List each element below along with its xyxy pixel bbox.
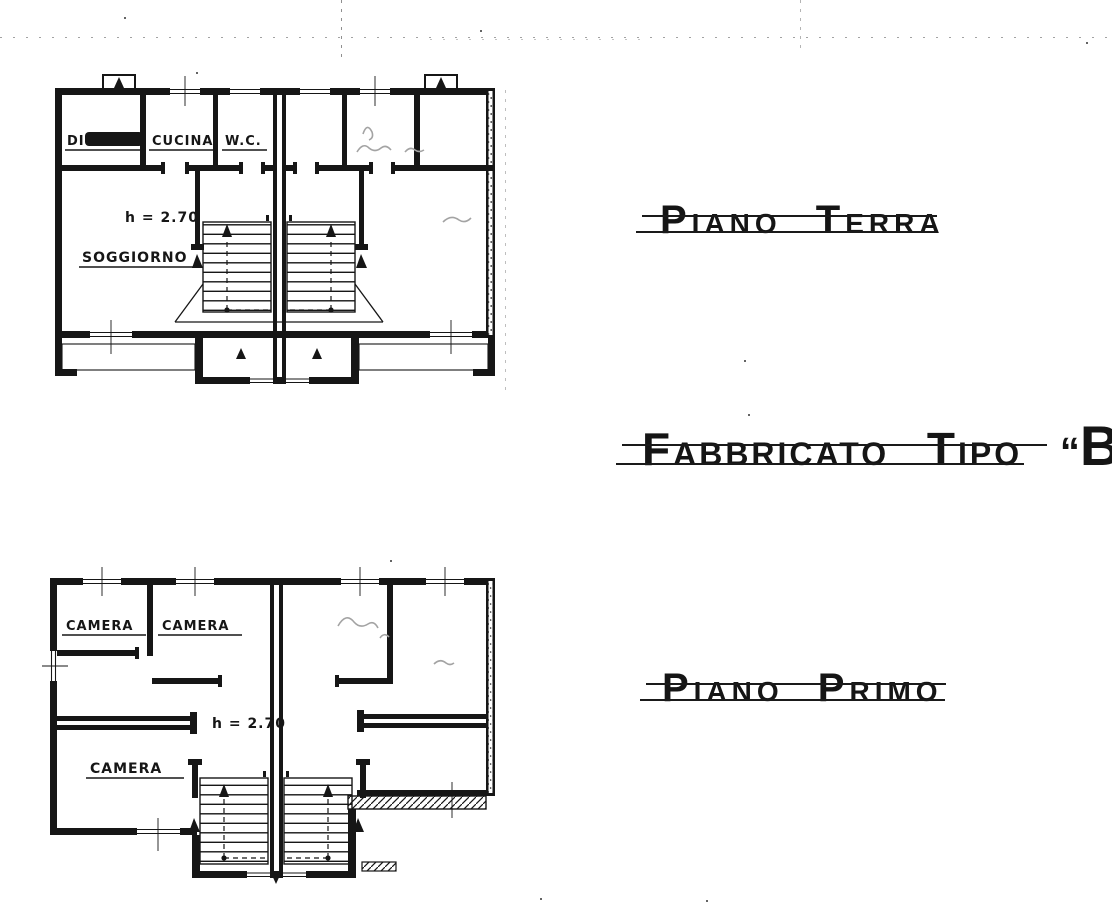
- room-label-bedroom-1: CAMERA: [66, 619, 134, 634]
- title-rule: [636, 231, 936, 233]
- title-rule: [616, 463, 1024, 465]
- scan-artifact-speck: [1086, 42, 1088, 44]
- height-note: h = 2.70: [125, 210, 199, 226]
- title-piano-terra: Piano Terra: [660, 200, 945, 240]
- scan-artifact-speck: [480, 30, 482, 32]
- scan-artifact-speck: [540, 898, 542, 900]
- room-label-living: SOGGIORNO: [82, 250, 187, 266]
- title-fabbricato-text: Fabbricato Tipo: [642, 423, 1022, 475]
- title-piano-primo-text: Piano Primo: [662, 666, 943, 710]
- room-label-bedroom-2: CAMERA: [162, 619, 230, 634]
- scan-artifact-speck: [390, 560, 392, 562]
- title-rule: [642, 215, 937, 217]
- staircase: [175, 215, 383, 322]
- scan-artifact-speck: [744, 360, 746, 362]
- scan-artifact-streak: [341, 0, 342, 60]
- scan-artifact-speck: [706, 900, 708, 902]
- quote-open: “: [1060, 430, 1080, 474]
- room-label-wc: W.C.: [225, 134, 262, 149]
- room-label-bedroom-3: CAMERA: [90, 761, 162, 777]
- ground-floor-plan: DI CUCINA W.C. h = 2.70 SOGGIORNO: [45, 72, 515, 397]
- title-piano-primo: Piano Primo: [662, 668, 943, 708]
- scan-artifact-speck: [748, 414, 750, 416]
- room-labels: CAMERA CAMERA h = 2.70 CAMERA: [62, 619, 286, 778]
- height-note: h = 2.70: [212, 716, 286, 732]
- title-rule: [622, 444, 1047, 446]
- pencil-scribbles: [338, 618, 454, 665]
- scan-artifact-streak: [800, 0, 801, 48]
- scribble-blot: [85, 132, 143, 146]
- vent-stubs: [103, 75, 457, 89]
- scan-artifact-dotted-line: [430, 39, 650, 40]
- title-fabbricato: Fabbricato Tipo “B„: [642, 424, 1112, 472]
- staircase: [189, 771, 364, 864]
- room-label-scribbled: DI: [67, 134, 85, 149]
- room-label-kitchen: CUCINA: [152, 134, 213, 149]
- first-floor-plan: CAMERA CAMERA h = 2.70 CAMERA: [42, 566, 517, 891]
- title-rule: [640, 699, 945, 701]
- balcony-hatch: [348, 796, 486, 871]
- scan-artifact-speck: [124, 17, 126, 19]
- scan-artifact-dotted-line: [0, 37, 1112, 38]
- title-rule: [646, 683, 946, 685]
- scanned-sheet: DI CUCINA W.C. h = 2.70 SOGGIORNO Piano …: [0, 0, 1112, 906]
- building-type-letter: B: [1080, 414, 1112, 477]
- title-piano-terra-text: Piano Terra: [660, 198, 945, 242]
